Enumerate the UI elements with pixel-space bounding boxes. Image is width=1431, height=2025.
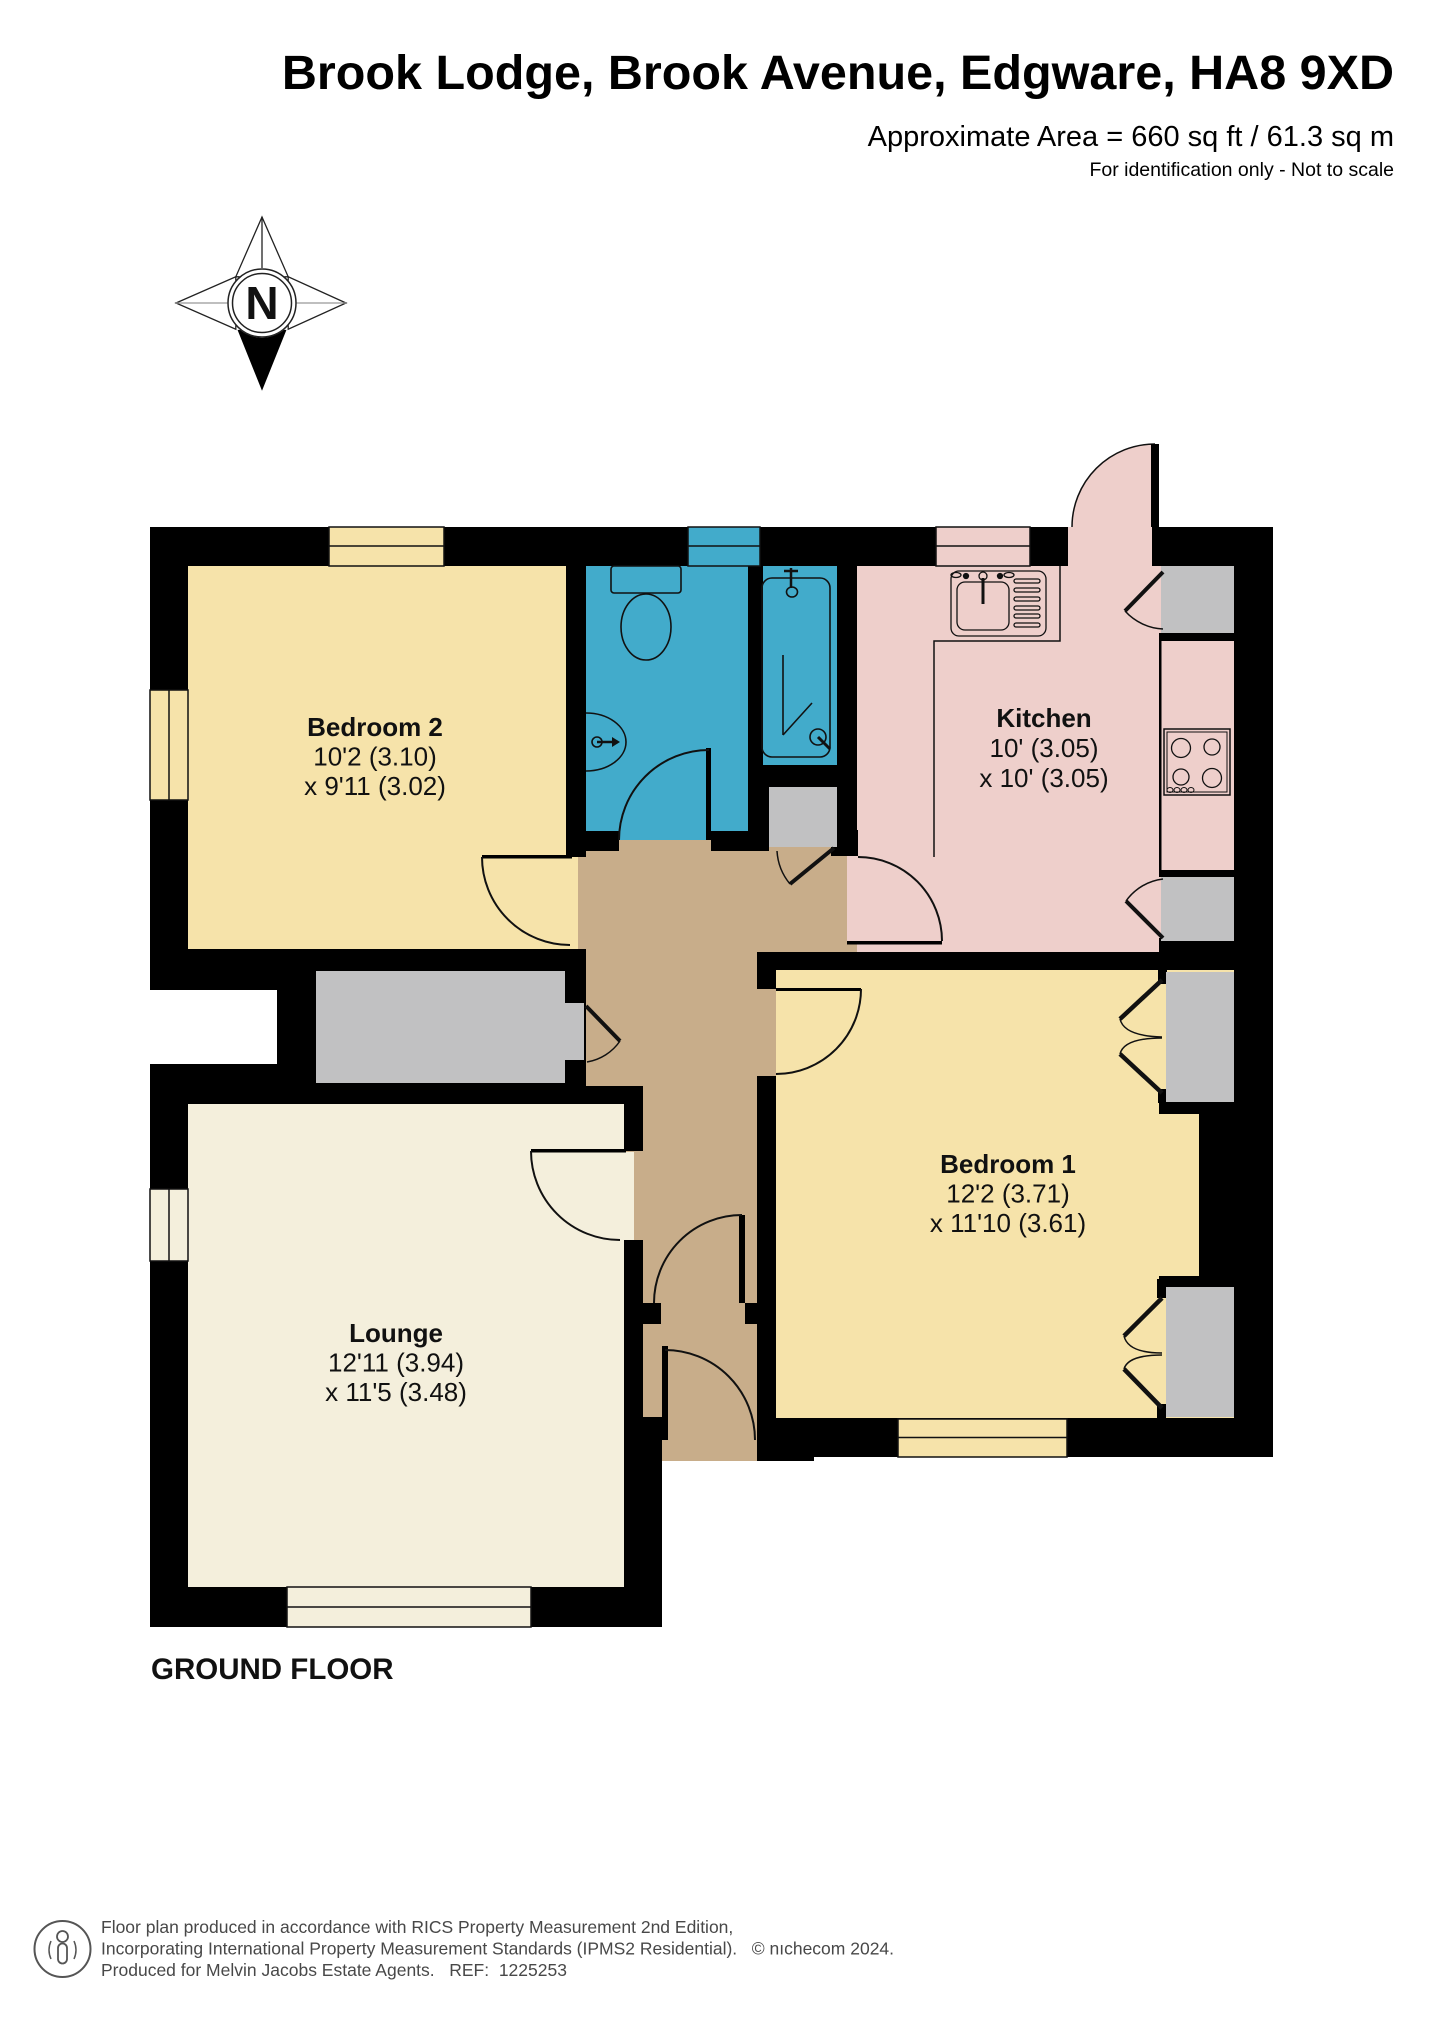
svg-text:x 10' (3.05): x 10' (3.05) xyxy=(979,763,1108,793)
svg-text:Incorporating International Pr: Incorporating International Property Mea… xyxy=(101,1939,894,1959)
svg-text:x 11'5 (3.48): x 11'5 (3.48) xyxy=(325,1377,467,1407)
svg-text:x 11'10 (3.61): x 11'10 (3.61) xyxy=(930,1208,1086,1238)
svg-text:Bedroom 2: Bedroom 2 xyxy=(307,712,443,742)
svg-text:10' (3.05): 10' (3.05) xyxy=(989,733,1098,763)
svg-text:GROUND FLOOR: GROUND FLOOR xyxy=(151,1653,394,1686)
svg-text:Lounge: Lounge xyxy=(349,1318,443,1348)
svg-text:Produced for Melvin Jacobs Est: Produced for Melvin Jacobs Estate Agents… xyxy=(101,1960,567,1980)
svg-text:Kitchen: Kitchen xyxy=(996,703,1091,733)
svg-text:Brook Lodge, Brook Avenue, Edg: Brook Lodge, Brook Avenue, Edgware, HA8 … xyxy=(282,46,1394,100)
svg-text:12'11 (3.94): 12'11 (3.94) xyxy=(328,1348,464,1378)
svg-text:10'2 (3.10): 10'2 (3.10) xyxy=(313,742,437,772)
svg-text:N: N xyxy=(245,277,278,329)
svg-text:Floor plan produced in accorda: Floor plan produced in accordance with R… xyxy=(101,1917,733,1937)
svg-text:x 9'11 (3.02): x 9'11 (3.02) xyxy=(304,771,446,801)
svg-text:12'2 (3.71): 12'2 (3.71) xyxy=(946,1179,1070,1209)
svg-text:For identification only - Not: For identification only - Not to scale xyxy=(1089,159,1394,181)
svg-text:Bedroom 1: Bedroom 1 xyxy=(940,1149,1076,1179)
svg-text:Approximate Area = 660 sq ft /: Approximate Area = 660 sq ft / 61.3 sq m xyxy=(868,121,1394,153)
